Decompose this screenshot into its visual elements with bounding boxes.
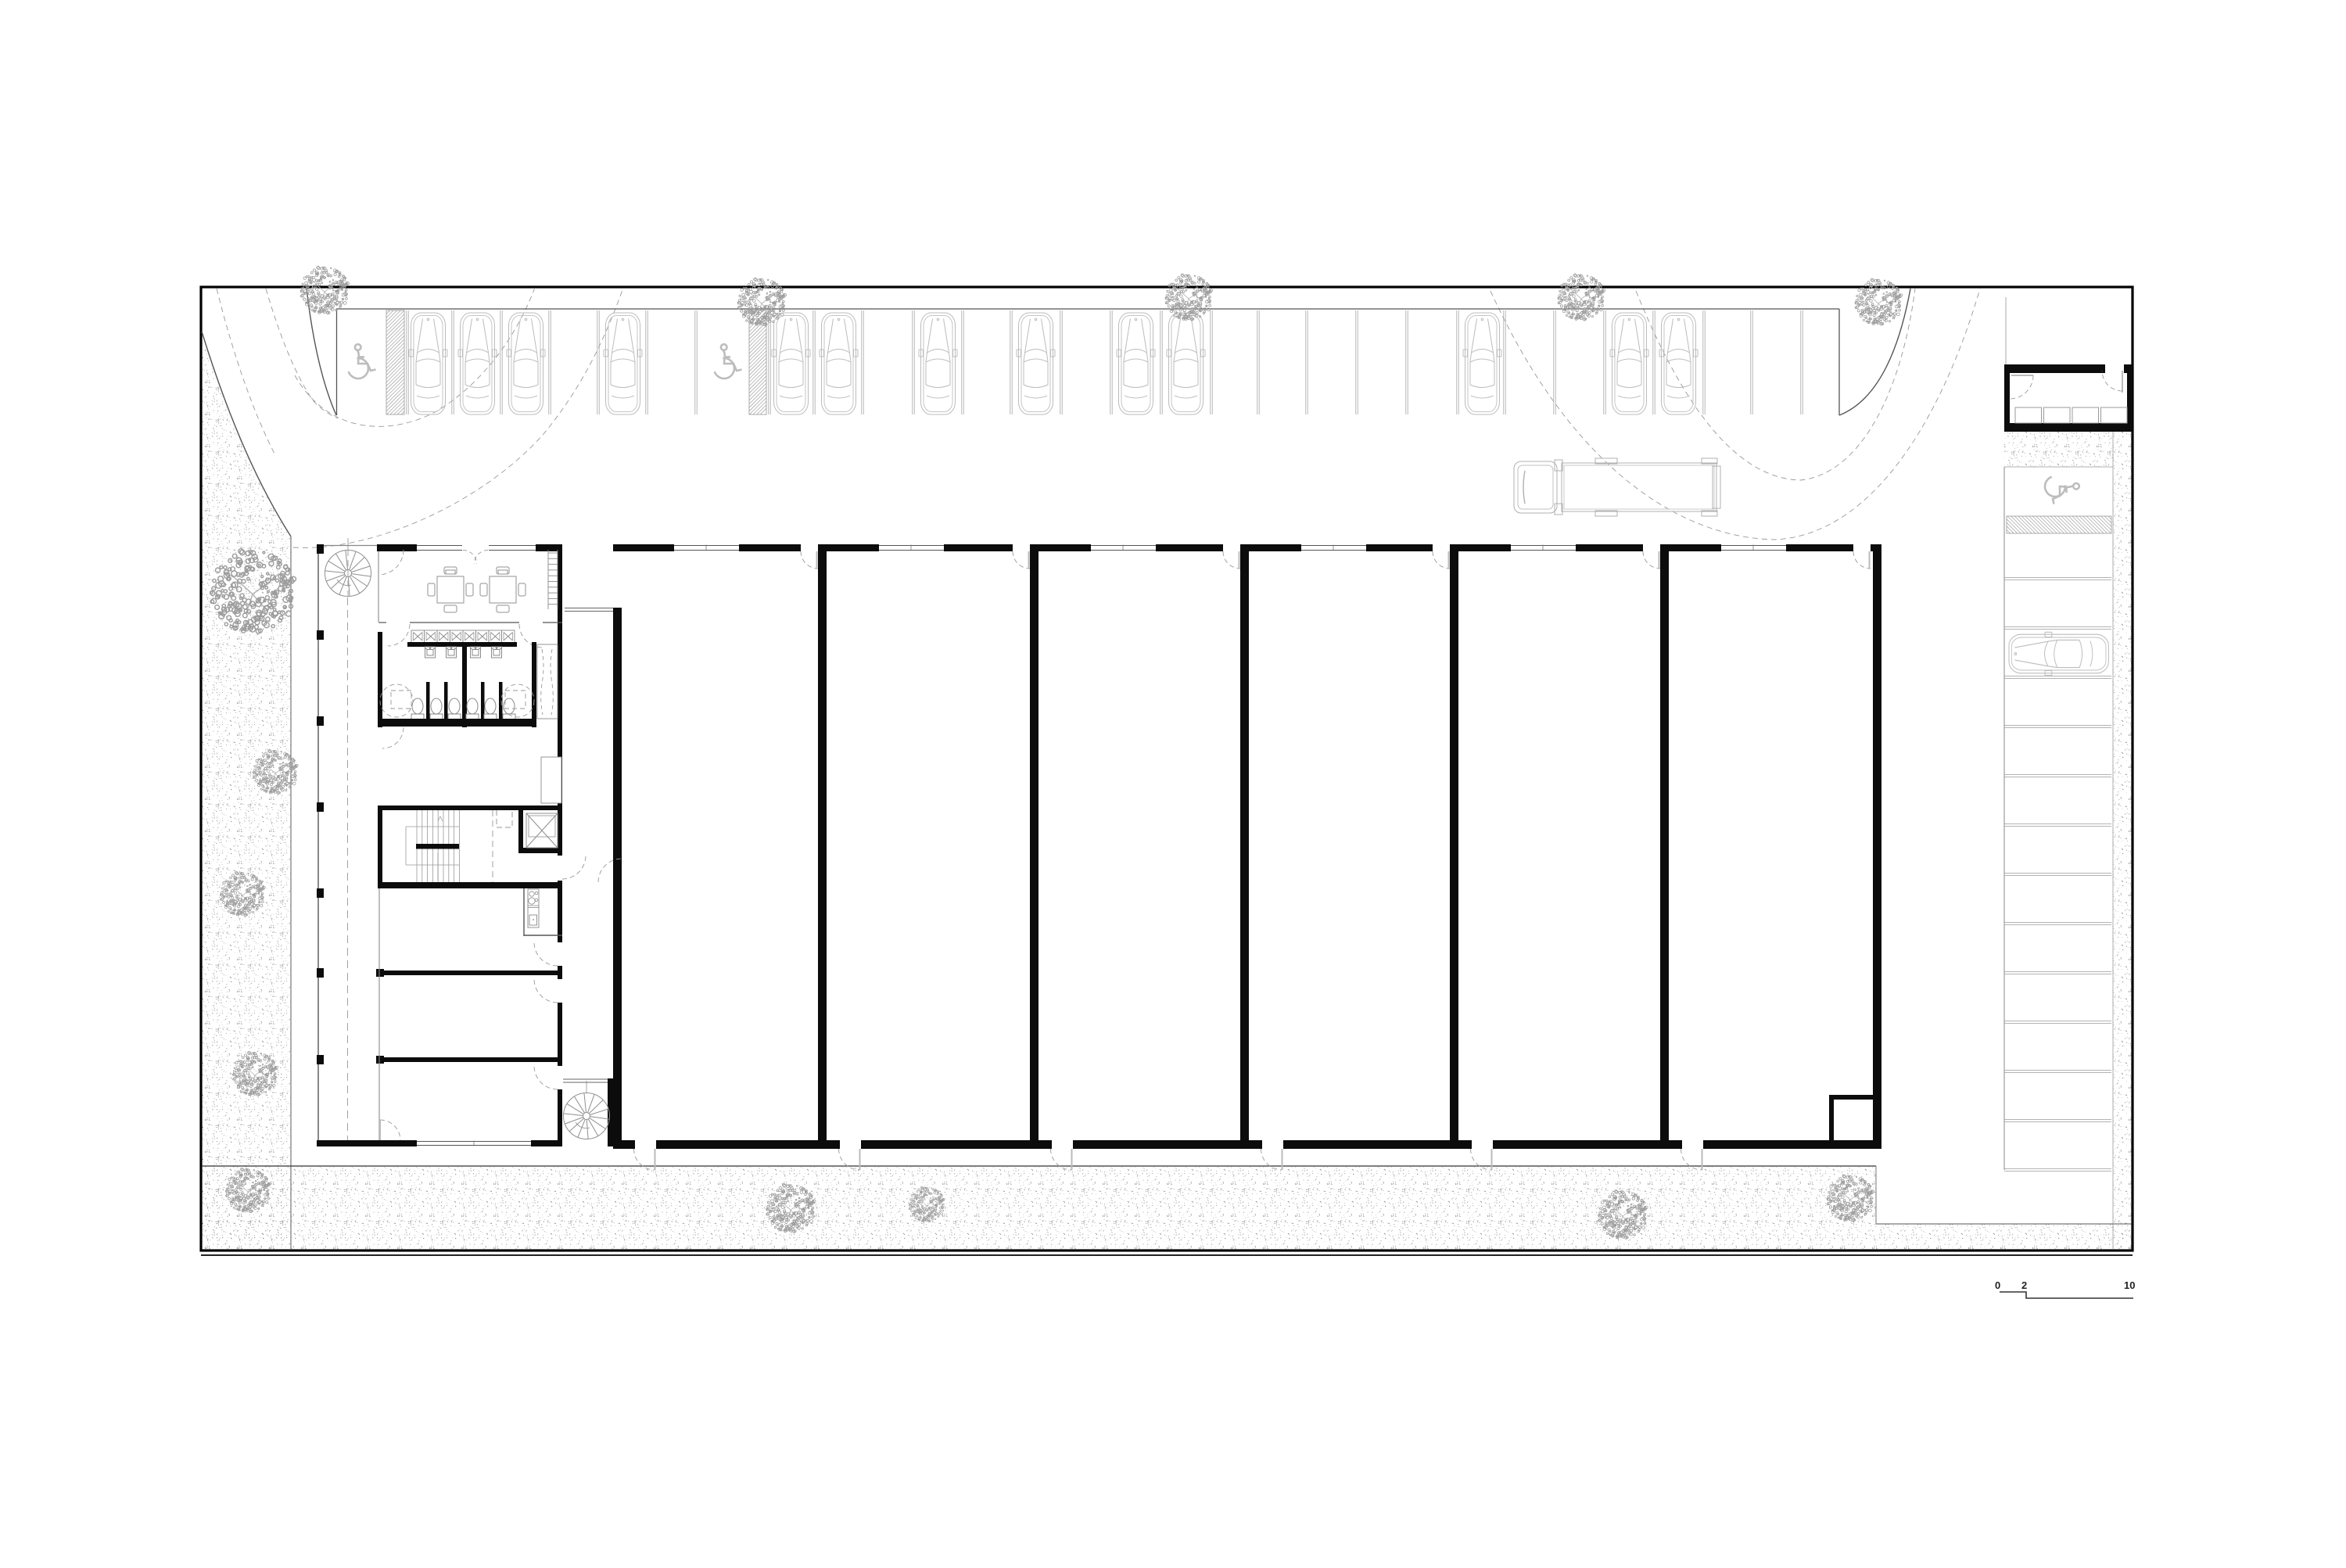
svg-text:2: 2 [2021,1279,2027,1291]
svg-text:10: 10 [2124,1279,2135,1291]
svg-text:0: 0 [1995,1279,2000,1291]
